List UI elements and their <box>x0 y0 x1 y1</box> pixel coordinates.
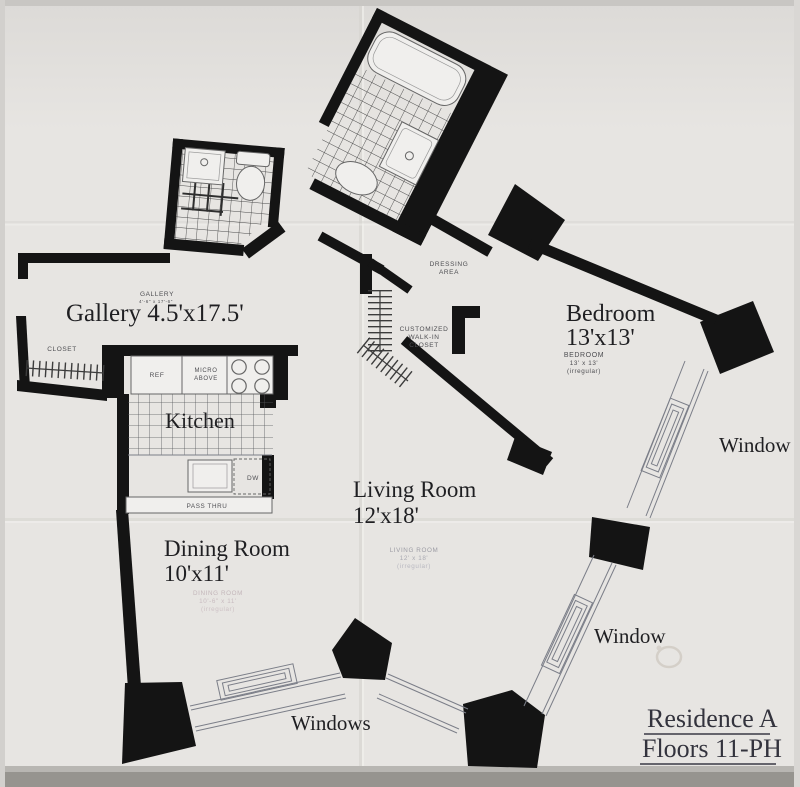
wall-top-left <box>18 253 170 263</box>
kitchen-wall-left-block <box>102 345 124 398</box>
bedroom-printed-dims: 13' x 13' <box>570 360 598 367</box>
pass-thru-label: PASS THRU <box>187 503 228 510</box>
walkin-closet-label-1: CUSTOMIZED <box>400 326 449 333</box>
living-room-printed-name: LIVING ROOM <box>390 547 439 554</box>
dining-room-printed-dims: 10'-6" x 11' <box>199 598 237 605</box>
living-room-printed-dims: 12' x 18' <box>400 555 428 562</box>
bedroom-label-2: 13'x13' <box>566 325 635 351</box>
bedroom-label-1: Bedroom <box>566 301 656 327</box>
dressing-area-label-1: DRESSING <box>430 261 469 268</box>
kitchen-wall-top <box>102 345 298 356</box>
living-room-label-1: Living Room <box>353 477 476 502</box>
residence-title-line1: Residence A <box>647 704 778 733</box>
residence-title-line2: Floors 11-PH <box>642 734 782 763</box>
gallery-printed-label: GALLERY <box>140 291 174 298</box>
kitchen-sink <box>188 460 232 492</box>
kitchen-wall-west <box>117 394 129 514</box>
closet-wall-L-side <box>452 306 465 354</box>
dressing-area-label-2: AREA <box>439 269 459 276</box>
dining-room-printed-name: DINING ROOM <box>193 590 243 597</box>
window-label-upper: Window <box>719 433 791 457</box>
microwave-cabinet <box>182 356 227 394</box>
floor-plan-svg: GALLERY 4'-6" x 17'-6" Gallery 4.5'x17.5… <box>0 0 800 787</box>
bedroom-printed-name: BEDROOM <box>564 352 604 359</box>
gallery-label: Gallery 4.5'x17.5' <box>66 300 244 327</box>
microwave-label-1: MICRO <box>195 368 218 374</box>
floor-plan-photo: GALLERY 4'-6" x 17'-6" Gallery 4.5'x17.5… <box>0 0 800 787</box>
refrigerator-label: REF <box>150 372 165 379</box>
windows-label-bottom: Windows <box>291 711 371 735</box>
dressing-wall-b <box>360 254 372 294</box>
window-label-lower: Window <box>594 624 666 648</box>
living-room-printed-note: (irregular) <box>397 563 431 570</box>
dining-room-label-1: Dining Room <box>164 536 290 561</box>
dining-room-printed-note: (irregular) <box>201 606 235 613</box>
bedroom-printed-note: (irregular) <box>567 368 601 375</box>
microwave-label-2: ABOVE <box>194 376 218 382</box>
kitchen-label: Kitchen <box>165 408 235 433</box>
walkin-closet-label-3: CLOSET <box>409 342 439 349</box>
closet-label: CLOSET <box>47 346 77 353</box>
toilet-tank <box>236 151 270 167</box>
dining-room-label-2: 10'x11' <box>164 561 229 586</box>
living-room-label-2: 12'x18' <box>353 503 419 528</box>
dishwasher-label: DW <box>247 475 259 482</box>
walkin-closet-label-2: WALK-IN <box>408 334 439 341</box>
